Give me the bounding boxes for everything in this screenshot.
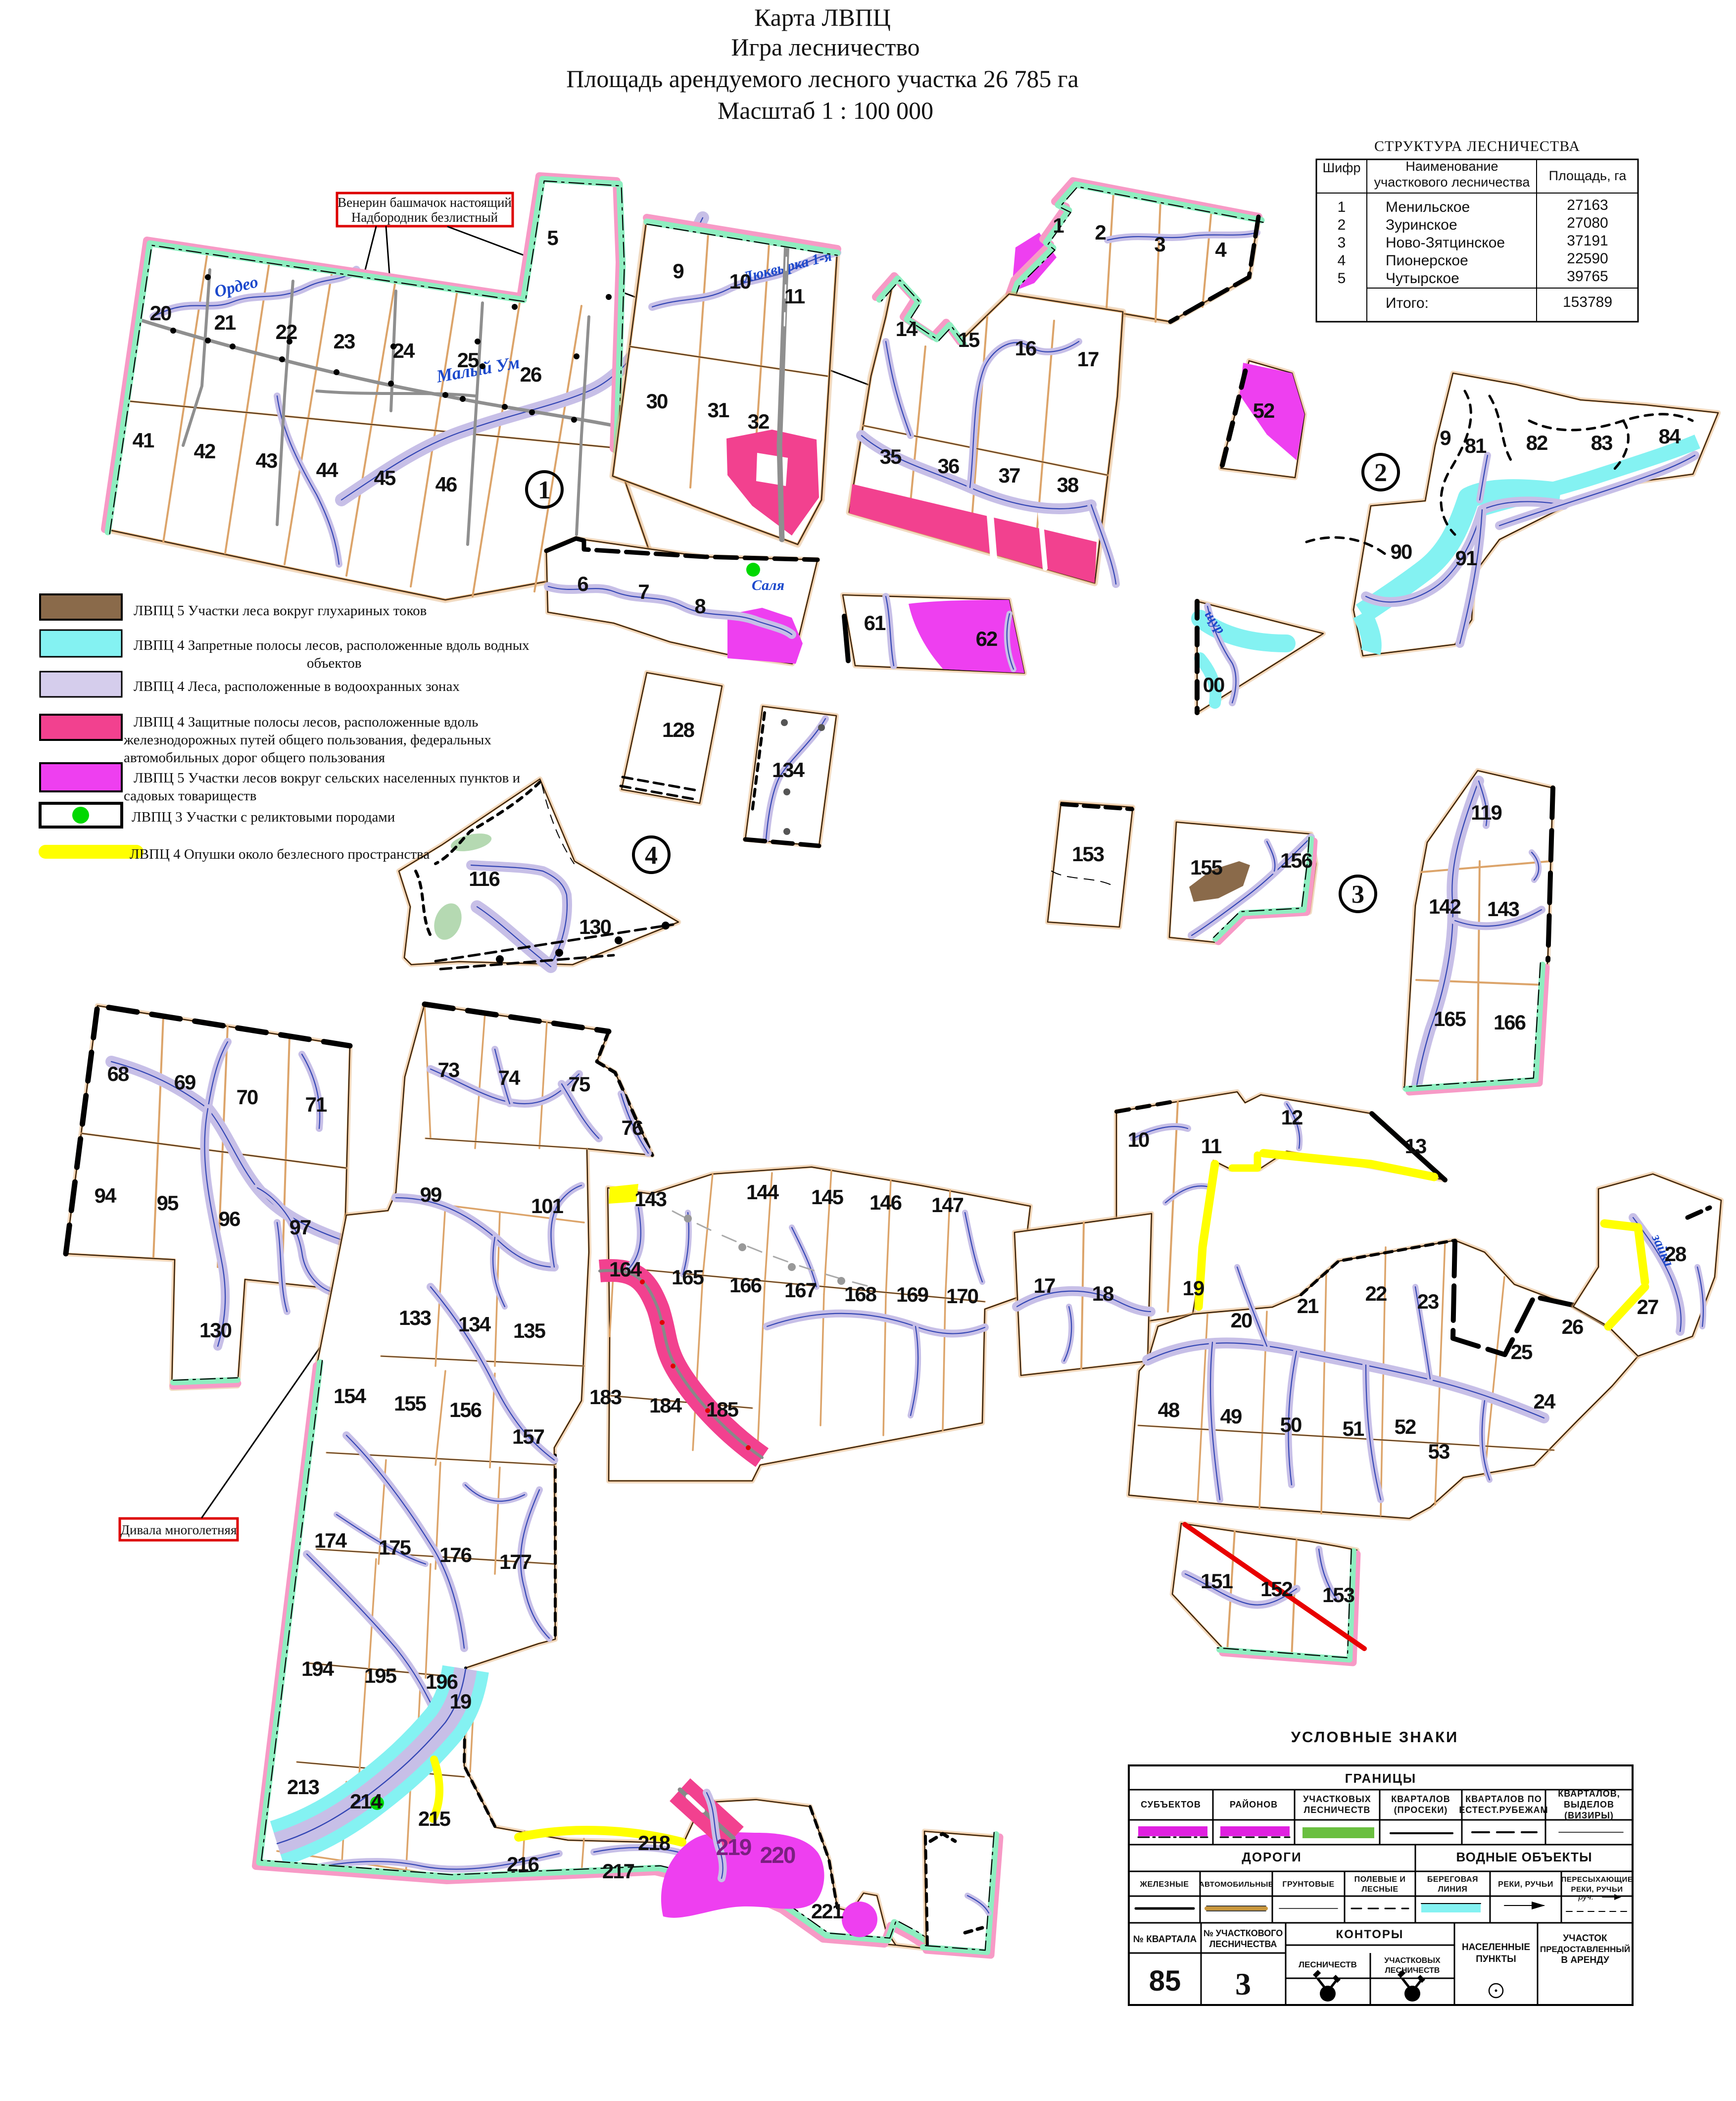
svg-text:РЕКИ, РУЧЬИ: РЕКИ, РУЧЬИ: [1498, 1880, 1553, 1889]
svg-text:90: 90: [1391, 540, 1412, 563]
svg-text:69: 69: [174, 1071, 195, 1094]
svg-text:ВЫДЕЛОВ: ВЫДЕЛОВ: [1564, 1800, 1614, 1809]
svg-text:155: 155: [1190, 856, 1223, 879]
svg-text:автомобильных дорог общего пол: автомобильных дорог общего пользования: [124, 750, 385, 766]
svg-text:ДОРОГИ: ДОРОГИ: [1242, 1850, 1302, 1864]
svg-text:НАСЕЛЕННЫЕ: НАСЕЛЕННЫЕ: [1462, 1942, 1530, 1953]
svg-text:21: 21: [1297, 1294, 1319, 1318]
svg-text:27080: 27080: [1567, 215, 1608, 231]
svg-text:82: 82: [1526, 431, 1547, 454]
svg-text:СУБЪЕКТОВ: СУБЪЕКТОВ: [1141, 1800, 1201, 1809]
svg-text:ВОДНЫЕ ОБЪЕКТЫ: ВОДНЫЕ ОБЪЕКТЫ: [1456, 1850, 1592, 1864]
svg-text:Зуринское: Зуринское: [1386, 217, 1457, 233]
svg-text:Итого:: Итого:: [1386, 295, 1429, 311]
svg-text:221: 221: [811, 1900, 844, 1923]
svg-text:9: 9: [673, 259, 683, 283]
svg-text:70: 70: [237, 1085, 258, 1109]
svg-text:194: 194: [301, 1657, 335, 1680]
svg-text:52: 52: [1253, 399, 1274, 422]
svg-text:151: 151: [1201, 1569, 1233, 1593]
svg-text:ЛВПЦ 3 Участки с реликтовыми п: ЛВПЦ 3 Участки с реликтовыми породами: [132, 809, 395, 825]
svg-text:ЕСТЕСТ.РУБЕЖАМ: ЕСТЕСТ.РУБЕЖАМ: [1459, 1805, 1548, 1815]
svg-text:21: 21: [214, 311, 236, 334]
svg-text:35: 35: [880, 445, 902, 468]
svg-text:143: 143: [634, 1187, 667, 1211]
svg-text:ПРЕДОСТАВЛЕННЫЙ: ПРЕДОСТАВЛЕННЫЙ: [1540, 1945, 1630, 1954]
svg-text:3: 3: [1338, 235, 1346, 251]
svg-text:4: 4: [645, 841, 658, 870]
svg-text:ГРАНИЦЫ: ГРАНИЦЫ: [1345, 1771, 1416, 1786]
svg-text:71: 71: [305, 1093, 327, 1116]
svg-text:ПЕРЕСЫХАЮЩИЕ: ПЕРЕСЫХАЮЩИЕ: [1561, 1875, 1633, 1884]
svg-text:ЛЕСНИЧЕСТВА: ЛЕСНИЧЕСТВА: [1209, 1939, 1277, 1949]
svg-text:ЛВПЦ 4 Леса, расположенные в в: ЛВПЦ 4 Леса, расположенные в водоохранны…: [134, 679, 460, 694]
svg-text:Игра лесничество: Игра лесничество: [731, 33, 919, 61]
svg-text:00: 00: [1203, 673, 1224, 696]
svg-text:2: 2: [1338, 217, 1346, 233]
svg-text:Пионерское: Пионерское: [1386, 252, 1468, 269]
svg-text:ЛВПЦ 5 Участки леса вокруг глу: ЛВПЦ 5 Участки леса вокруг глухариных то…: [134, 603, 427, 619]
svg-text:41: 41: [133, 429, 154, 452]
svg-text:УСЛОВНЫЕ ЗНАКИ: УСЛОВНЫЕ ЗНАКИ: [1291, 1728, 1459, 1746]
svg-text:4: 4: [1338, 252, 1346, 269]
svg-text:ПОЛЕВЫЕ И: ПОЛЕВЫЕ И: [1354, 1875, 1406, 1884]
svg-text:20: 20: [1231, 1309, 1252, 1332]
svg-text:101: 101: [531, 1194, 564, 1218]
svg-text:37191: 37191: [1567, 233, 1608, 249]
svg-text:20: 20: [150, 301, 171, 325]
svg-text:ЛЕСНИЧЕСТВ: ЛЕСНИЧЕСТВ: [1304, 1805, 1371, 1815]
svg-text:153: 153: [1322, 1583, 1354, 1607]
svg-text:37: 37: [999, 464, 1020, 487]
svg-text:КВАРТАЛОВ ПО: КВАРТАЛОВ ПО: [1465, 1794, 1542, 1804]
svg-text:156: 156: [449, 1398, 482, 1421]
svg-text:ЛИНИЯ: ЛИНИЯ: [1438, 1885, 1468, 1894]
svg-text:Шифр: Шифр: [1322, 160, 1360, 175]
svg-text:166: 166: [729, 1273, 762, 1297]
svg-text:38: 38: [1057, 473, 1079, 496]
svg-text:147: 147: [931, 1193, 964, 1217]
svg-text:19: 19: [1183, 1276, 1204, 1300]
svg-text:10: 10: [729, 270, 751, 293]
svg-text:1: 1: [1053, 214, 1064, 237]
svg-text:30: 30: [646, 390, 668, 413]
svg-text:3: 3: [1154, 233, 1165, 256]
svg-text:6: 6: [577, 572, 588, 595]
svg-text:Менильское: Менильское: [1386, 199, 1470, 215]
svg-text:ЛВПЦ 4 Запретные полосы лесов,: ЛВПЦ 4 Запретные полосы лесов, расположе…: [134, 637, 530, 653]
svg-text:216: 216: [507, 1853, 539, 1876]
svg-text:153: 153: [1072, 842, 1104, 866]
svg-text:1: 1: [538, 476, 551, 504]
svg-text:184: 184: [649, 1394, 682, 1417]
svg-text:16: 16: [1015, 337, 1036, 360]
svg-text:76: 76: [622, 1116, 643, 1139]
svg-text:УЧАСТКОВЫХ: УЧАСТКОВЫХ: [1384, 1956, 1441, 1965]
svg-text:195: 195: [364, 1664, 397, 1687]
svg-text:25: 25: [457, 348, 479, 372]
svg-text:134: 134: [772, 758, 805, 782]
svg-text:Надбородник безлистный: Надбородник безлистный: [351, 210, 498, 225]
svg-text:116: 116: [469, 867, 499, 890]
svg-text:165: 165: [672, 1266, 704, 1289]
svg-text:134: 134: [458, 1313, 491, 1336]
svg-text:97: 97: [289, 1216, 311, 1239]
svg-text:17: 17: [1034, 1274, 1055, 1297]
svg-text:22: 22: [1365, 1282, 1387, 1305]
svg-text:91: 91: [1455, 546, 1477, 570]
svg-text:7: 7: [638, 580, 649, 603]
svg-text:44: 44: [316, 458, 338, 482]
svg-text:48: 48: [1158, 1398, 1180, 1421]
svg-text:85: 85: [1149, 1965, 1181, 1997]
svg-text:9: 9: [1440, 426, 1450, 449]
svg-text:железнодорожных путей общего п: железнодорожных путей общего пользования…: [123, 732, 491, 748]
svg-text:185: 185: [706, 1398, 739, 1421]
svg-text:62: 62: [976, 627, 997, 650]
svg-text:143: 143: [1487, 897, 1519, 921]
svg-text:24: 24: [393, 339, 415, 362]
svg-text:169: 169: [896, 1283, 928, 1306]
svg-text:(ВИЗИРЫ): (ВИЗИРЫ): [1564, 1810, 1614, 1820]
svg-text:ЛВПЦ 4 Опушки около безлесного: ЛВПЦ 4 Опушки около безлесного пространс…: [130, 846, 430, 862]
svg-text:№ УЧАСТКОВОГО: № УЧАСТКОВОГО: [1204, 1928, 1283, 1938]
svg-text:17: 17: [1077, 347, 1099, 371]
svg-text:4: 4: [1215, 238, 1227, 261]
svg-text:39765: 39765: [1567, 268, 1608, 285]
svg-text:КВАРТАЛОВ: КВАРТАЛОВ: [1391, 1794, 1450, 1804]
svg-text:11: 11: [1201, 1134, 1222, 1158]
svg-text:Карта ЛВПЦ: Карта ЛВПЦ: [754, 3, 891, 31]
svg-text:61: 61: [864, 611, 886, 635]
svg-text:ЛВПЦ 4 Защитные полосы лесов,: ЛВПЦ 4 Защитные полосы лесов, расположен…: [134, 714, 478, 730]
svg-text:25: 25: [1511, 1340, 1533, 1364]
svg-text:(ПРОСЕКИ): (ПРОСЕКИ): [1394, 1805, 1448, 1815]
svg-text:КВАРТАЛОВ,: КВАРТАЛОВ,: [1558, 1789, 1620, 1799]
svg-text:157: 157: [512, 1425, 544, 1448]
svg-text:ПУНКТЫ: ПУНКТЫ: [1476, 1954, 1516, 1964]
svg-text:164: 164: [609, 1258, 642, 1281]
svg-text:3: 3: [1235, 1966, 1251, 2002]
svg-text:22590: 22590: [1567, 250, 1608, 267]
svg-text:130: 130: [579, 915, 611, 938]
svg-text:43: 43: [256, 449, 277, 472]
svg-text:24: 24: [1534, 1390, 1556, 1413]
svg-text:11: 11: [784, 285, 805, 308]
svg-text:183: 183: [589, 1385, 622, 1409]
svg-text:2: 2: [1095, 221, 1106, 244]
svg-text:5: 5: [547, 226, 558, 249]
svg-text:№ КВАРТАЛА: № КВАРТАЛА: [1133, 1934, 1197, 1945]
svg-text:218: 218: [638, 1831, 671, 1855]
svg-text:участкового лесничества: участкового лесничества: [1374, 175, 1531, 190]
svg-text:Венерин башмачок настоящий: Венерин башмачок настоящий: [338, 195, 512, 210]
svg-text:99: 99: [420, 1183, 441, 1206]
svg-text:18: 18: [1092, 1282, 1114, 1305]
svg-text:12: 12: [1281, 1106, 1302, 1129]
svg-text:ЖЕЛЕЗНЫЕ: ЖЕЛЕЗНЫЕ: [1140, 1880, 1189, 1889]
svg-text:142: 142: [1429, 895, 1461, 918]
svg-text:152: 152: [1260, 1577, 1293, 1601]
svg-text:Ново-Зятцинское: Ново-Зятцинское: [1386, 235, 1505, 251]
svg-text:215: 215: [418, 1807, 451, 1830]
svg-text:217: 217: [602, 1859, 634, 1883]
svg-text:84: 84: [1659, 425, 1681, 448]
svg-text:УЧАСТКОВЫХ: УЧАСТКОВЫХ: [1303, 1794, 1371, 1804]
svg-text:2: 2: [1374, 459, 1387, 487]
svg-text:объектов: объектов: [307, 655, 362, 671]
svg-text:52: 52: [1395, 1415, 1416, 1438]
svg-text:144: 144: [746, 1180, 779, 1204]
svg-text:153789: 153789: [1563, 294, 1612, 310]
svg-text:Дивала многолетняя: Дивала многолетняя: [121, 1522, 237, 1537]
svg-text:49: 49: [1220, 1405, 1242, 1428]
svg-text:155: 155: [394, 1392, 427, 1415]
svg-text:УЧАСТОК: УЧАСТОК: [1563, 1933, 1607, 1944]
svg-text:75: 75: [569, 1073, 590, 1096]
svg-text:74: 74: [498, 1066, 521, 1089]
svg-text:КОНТОРЫ: КОНТОРЫ: [1336, 1928, 1404, 1941]
svg-text:5: 5: [1338, 270, 1346, 287]
svg-text:50: 50: [1280, 1413, 1302, 1436]
svg-text:51: 51: [1343, 1417, 1364, 1440]
svg-text:130: 130: [199, 1319, 232, 1342]
svg-text:руч.: руч.: [1578, 1892, 1594, 1902]
svg-text:68: 68: [107, 1062, 129, 1085]
svg-text:22: 22: [276, 320, 297, 343]
svg-text:156: 156: [1280, 849, 1312, 872]
svg-text:23: 23: [334, 330, 355, 353]
svg-text:13: 13: [1405, 1134, 1426, 1158]
svg-text:26: 26: [1562, 1315, 1583, 1338]
svg-text:119: 119: [1471, 801, 1501, 824]
svg-text:213: 213: [287, 1775, 319, 1799]
svg-text:177: 177: [499, 1550, 531, 1573]
svg-text:73: 73: [438, 1058, 459, 1081]
svg-text:Площадь, га: Площадь, га: [1549, 168, 1627, 183]
svg-text:46: 46: [435, 473, 457, 496]
svg-text:23: 23: [1417, 1290, 1439, 1313]
svg-text:133: 133: [399, 1306, 431, 1329]
svg-text:36: 36: [938, 454, 959, 478]
svg-text:АВТОМОБИЛЬНЫЕ: АВТОМОБИЛЬНЫЕ: [1199, 1880, 1274, 1889]
svg-text:154: 154: [334, 1384, 367, 1408]
svg-text:168: 168: [844, 1282, 877, 1306]
svg-text:145: 145: [811, 1185, 844, 1209]
svg-text:РАЙОНОВ: РАЙОНОВ: [1230, 1799, 1278, 1809]
svg-text:175: 175: [379, 1536, 411, 1559]
svg-text:Наименование: Наименование: [1405, 159, 1498, 174]
svg-text:ЛЕСНИЧЕСТВ: ЛЕСНИЧЕСТВ: [1385, 1966, 1440, 1975]
svg-text:3: 3: [1351, 880, 1364, 909]
svg-text:15: 15: [958, 328, 980, 351]
svg-text:ЛЕСНИЧЕСТВ: ЛЕСНИЧЕСТВ: [1299, 1960, 1357, 1969]
svg-text:Масштаб 1 : 100 000: Масштаб 1 : 100 000: [718, 97, 933, 124]
svg-text:135: 135: [513, 1319, 546, 1342]
svg-text:Площадь арендуемого лесного уч: Площадь арендуемого лесного участка 26 7…: [566, 65, 1078, 93]
svg-text:26: 26: [520, 363, 541, 386]
svg-text:31: 31: [708, 398, 729, 422]
svg-text:176: 176: [439, 1543, 472, 1566]
svg-text:170: 170: [946, 1284, 978, 1308]
svg-text:Саля: Саля: [752, 577, 784, 593]
svg-text:Чутырское: Чутырское: [1386, 270, 1459, 287]
svg-text:219: 219: [716, 1834, 751, 1860]
svg-text:95: 95: [157, 1191, 179, 1215]
svg-text:27163: 27163: [1567, 197, 1608, 213]
svg-text:1: 1: [1338, 199, 1346, 215]
svg-text:БЕРЕГОВАЯ: БЕРЕГОВАЯ: [1427, 1875, 1478, 1884]
svg-text:45: 45: [374, 466, 396, 489]
svg-text:19: 19: [450, 1690, 471, 1713]
svg-text:садовых товариществ: садовых товариществ: [124, 788, 256, 804]
svg-text:167: 167: [784, 1278, 817, 1302]
svg-text:ЛЕСНЫЕ: ЛЕСНЫЕ: [1361, 1885, 1398, 1894]
svg-text:166: 166: [1494, 1011, 1526, 1034]
svg-text:174: 174: [314, 1529, 347, 1552]
svg-text:10: 10: [1128, 1128, 1149, 1151]
svg-text:ГРУНТОВЫЕ: ГРУНТОВЫЕ: [1282, 1880, 1334, 1889]
svg-text:14: 14: [896, 317, 918, 341]
svg-text:220: 220: [760, 1842, 795, 1868]
svg-text:165: 165: [1434, 1007, 1466, 1030]
svg-text:28: 28: [1665, 1242, 1687, 1266]
svg-text:214: 214: [350, 1790, 383, 1813]
svg-text:8: 8: [694, 594, 706, 618]
svg-text:128: 128: [662, 718, 695, 741]
svg-text:ЛВПЦ 5 Участки лесов вокруг се: ЛВПЦ 5 Участки лесов вокруг сельских нас…: [134, 770, 520, 786]
svg-text:53: 53: [1428, 1440, 1449, 1463]
svg-text:42: 42: [194, 440, 215, 463]
svg-text:СТРУКТУРА ЛЕСНИЧЕСТВА: СТРУКТУРА ЛЕСНИЧЕСТВА: [1374, 138, 1580, 154]
svg-text:81: 81: [1465, 434, 1487, 457]
svg-text:27: 27: [1637, 1295, 1658, 1319]
svg-text:146: 146: [869, 1191, 902, 1214]
svg-text:94: 94: [95, 1184, 117, 1207]
svg-text:96: 96: [219, 1207, 240, 1230]
svg-text:В АРЕНДУ: В АРЕНДУ: [1561, 1955, 1609, 1965]
svg-text:83: 83: [1591, 431, 1612, 454]
svg-text:32: 32: [748, 410, 769, 433]
